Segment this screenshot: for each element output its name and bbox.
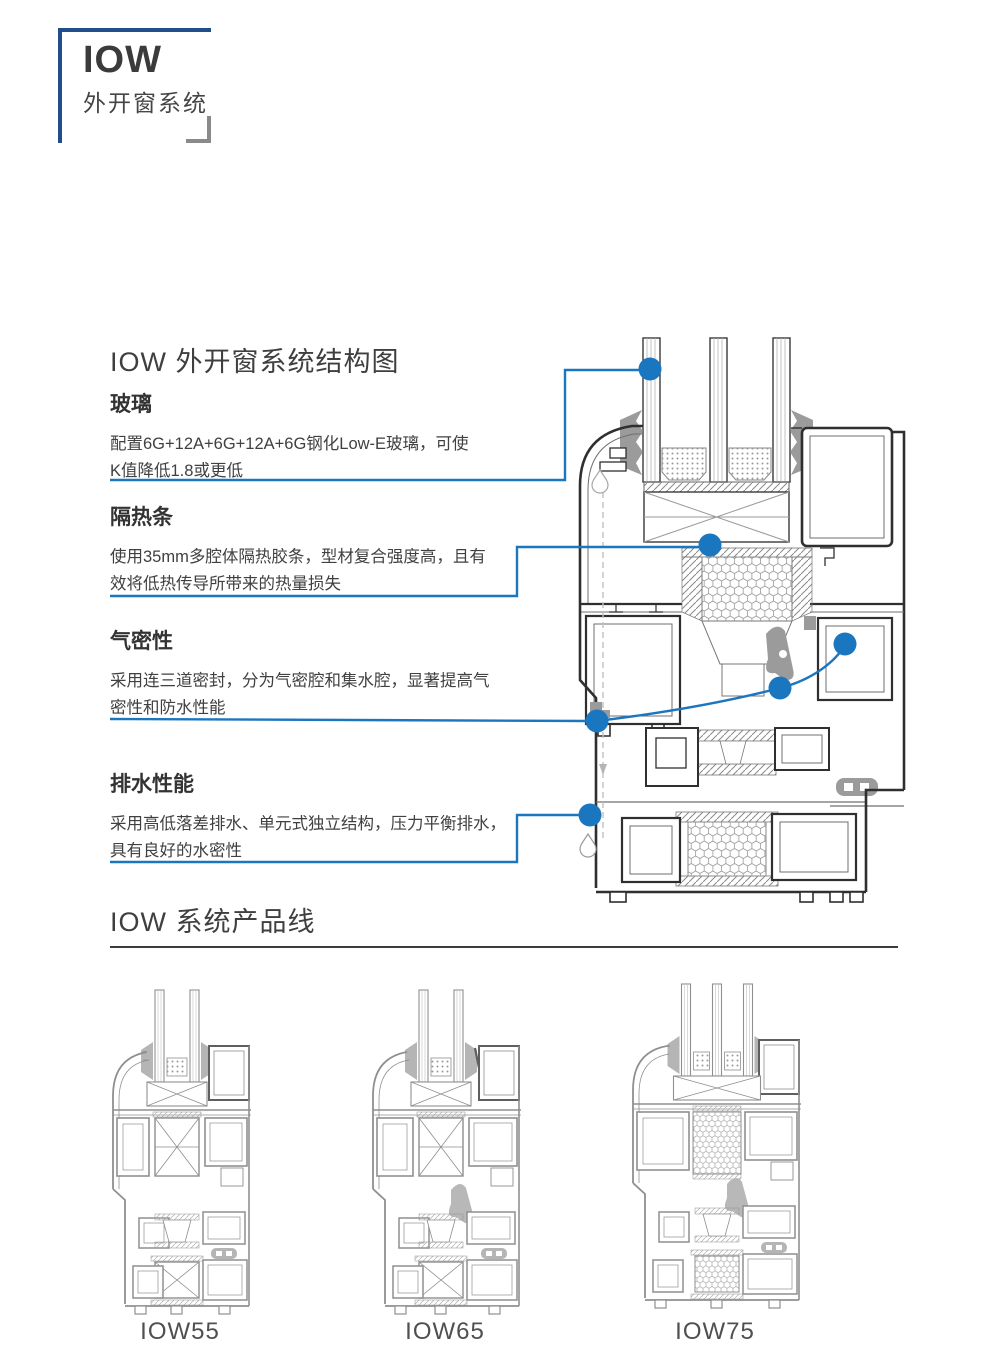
glazing-unit — [643, 338, 790, 492]
logo-subtitle: 外开窗系统 — [83, 84, 208, 118]
feature-text-line: 使用35mm多腔体隔热胶条，型材复合强度高，且有 — [110, 544, 580, 571]
feature-title: 玻璃 — [110, 388, 580, 418]
feature-text-line: 采用连三道密封，分为气密腔和集水腔，显著提高气 — [110, 668, 580, 695]
feature-title: 排水性能 — [110, 768, 580, 798]
logo-title: IOW — [83, 40, 162, 82]
glazing-clip — [836, 778, 878, 796]
structure-cross-section-diagram — [570, 336, 910, 904]
logo-corner-icon — [186, 116, 211, 143]
droplet-icon — [592, 470, 608, 493]
sill-honeycomb — [688, 822, 766, 876]
iow65-profile-diagram — [365, 984, 525, 1320]
section-divider — [110, 946, 898, 948]
feature-text-line: 具有良好的水密性 — [110, 838, 580, 865]
feature-airtightness: 气密性 采用连三道密封，分为气密腔和集水腔，显著提高气 密性和防水性能 — [110, 625, 580, 722]
products-heading: IOW 系统产品线 — [110, 900, 316, 939]
product-iow75 — [625, 978, 805, 1319]
feature-text-line: 效将低热传导所带来的热量损失 — [110, 571, 580, 598]
product-label: IOW55 — [105, 1318, 255, 1346]
feature-glass: 玻璃 配置6G+12A+6G+12A+6G钢化Low-E玻璃，可使 K值降低1.… — [110, 388, 580, 485]
structure-heading: IOW 外开窗系统结构图 — [110, 340, 400, 379]
thermal-break-honeycomb — [702, 557, 792, 621]
product-iow55 — [105, 984, 255, 1325]
feature-text-line: 密性和防水性能 — [110, 695, 580, 722]
product-label: IOW75 — [625, 1318, 805, 1346]
feature-thermal-strip: 隔热条 使用35mm多腔体隔热胶条，型材复合强度高，且有 效将低热传导所带来的热… — [110, 501, 580, 598]
feature-text-line: K值降低1.8或更低 — [110, 458, 580, 485]
product-iow65 — [365, 984, 525, 1325]
feature-title: 气密性 — [110, 625, 580, 655]
feature-title: 隔热条 — [110, 501, 580, 531]
catalog-page: IOW 外开窗系统 IOW 外开窗系统结构图 玻璃 配置6G+12A+6G+12… — [0, 0, 1000, 1365]
feature-drainage: 排水性能 采用高低落差排水、单元式独立结构，压力平衡排水， 具有良好的水密性 — [110, 768, 580, 865]
feature-text-line: 配置6G+12A+6G+12A+6G钢化Low-E玻璃，可使 — [110, 431, 580, 458]
droplet-icon — [580, 834, 596, 857]
iow75-profile-diagram — [625, 978, 805, 1314]
drain-arrow-icon — [599, 764, 607, 775]
iow55-profile-diagram — [105, 984, 255, 1320]
product-label: IOW65 — [365, 1318, 525, 1346]
feature-text-line: 采用高低落差排水、单元式独立结构，压力平衡排水， — [110, 811, 580, 838]
